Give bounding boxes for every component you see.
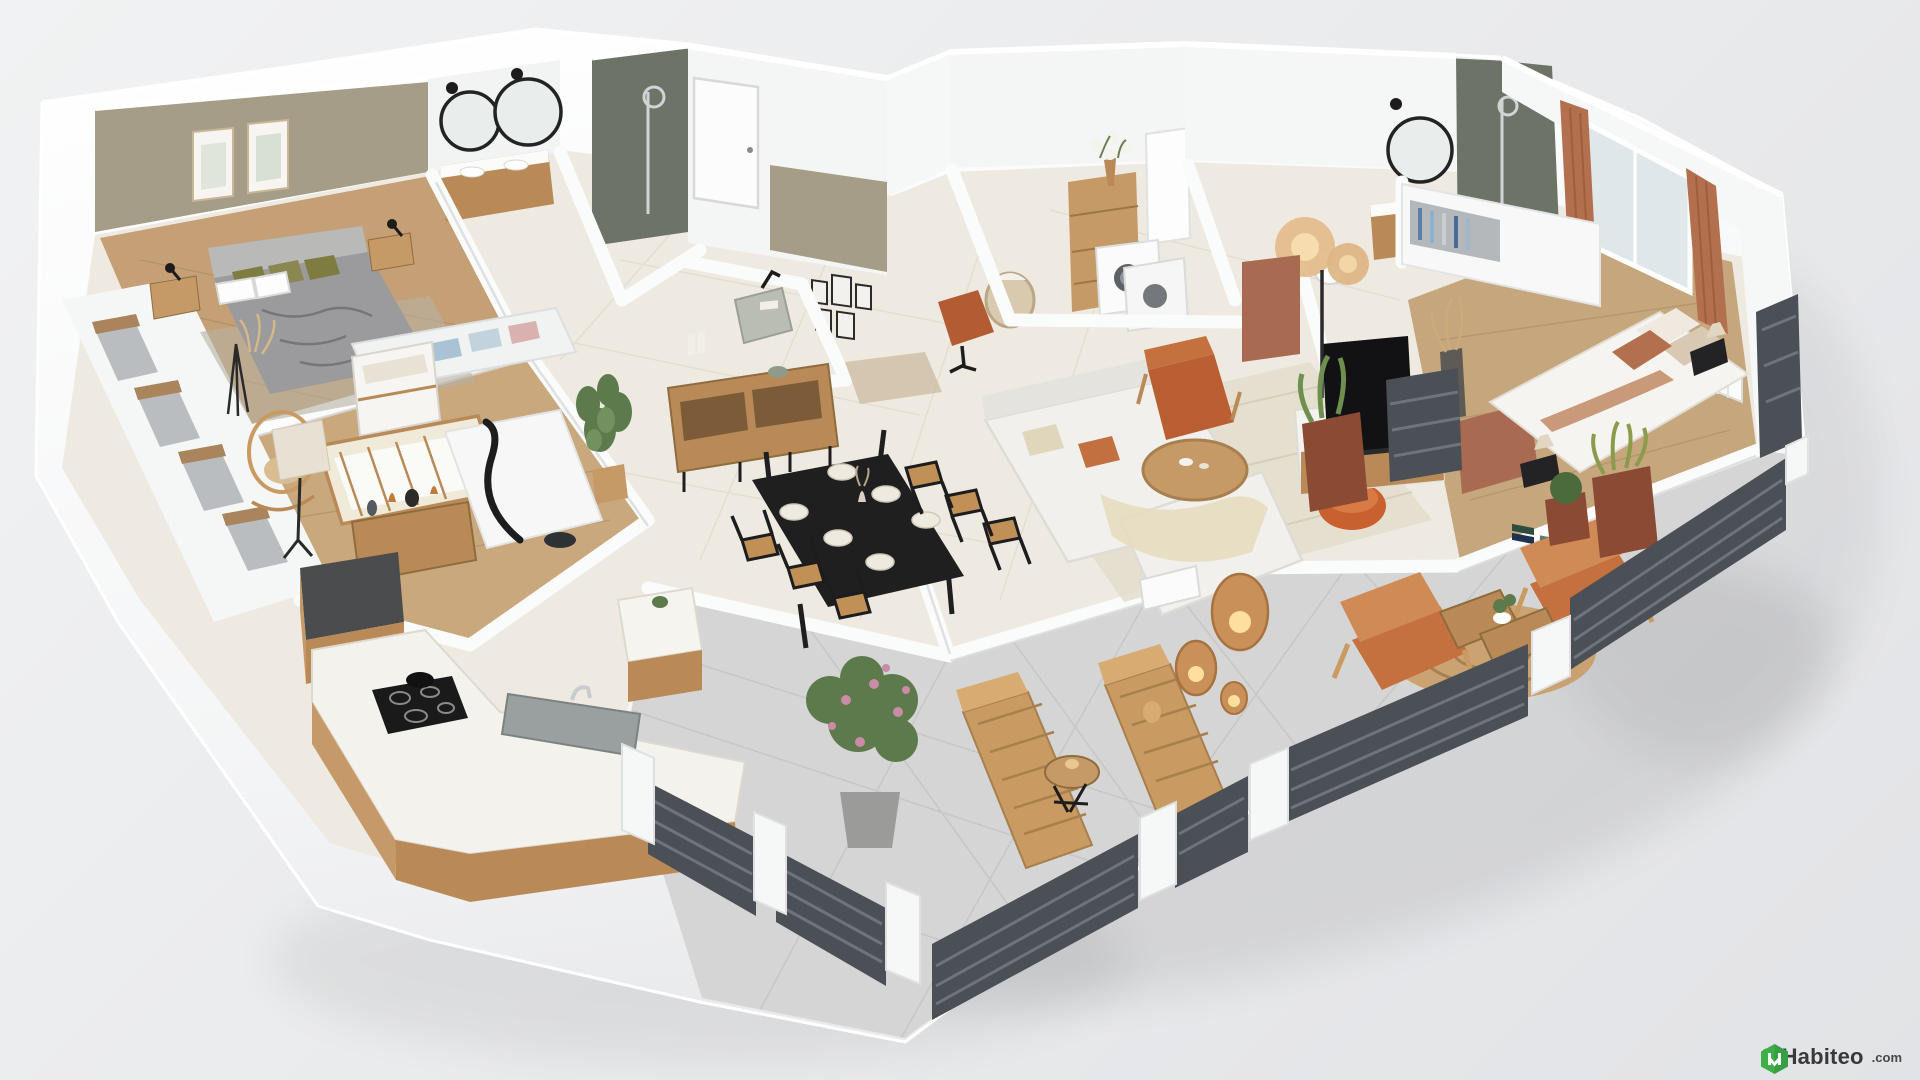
kitchen-island [618,588,702,702]
wall-sconce-icon [511,68,523,80]
brand-name: Habiteo [1782,1044,1864,1070]
round-mirror-icon [1388,118,1452,182]
terracotta-partition [1242,255,1300,362]
floorplan-3d-render: © Habiteo.com [0,0,1920,1080]
herb-pot-icon [652,596,668,608]
wall-sconce-icon [1390,98,1402,110]
coffee-table-icon [1143,440,1247,500]
round-mirror-icon [441,92,499,150]
front-door [694,78,758,208]
brand-tld: .com [1872,1050,1902,1065]
decor-bowl [768,366,788,378]
door-handle-icon [747,147,753,153]
round-mirror-icon [495,79,561,145]
floorplan-scene [0,0,1920,1080]
watermark: © Habiteo.com [1761,1044,1902,1070]
robot-vacuum-icon [544,532,576,548]
wall-sconce-icon [446,82,458,94]
changing-table [352,342,440,436]
cooking-pot-icon [406,672,434,688]
shower1 [592,46,688,246]
habiteo-logo-icon [1761,1044,1788,1074]
wall-cabinet [1146,128,1190,244]
nightstand [368,233,414,271]
